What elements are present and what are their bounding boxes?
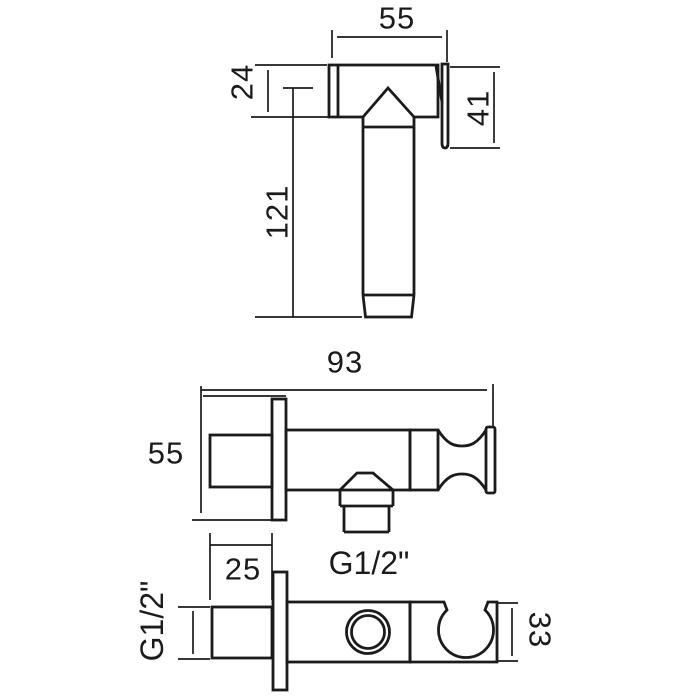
dim-label-overall-length: 93 (327, 347, 363, 378)
wall-plate-bottom (273, 572, 287, 690)
valve-body-bottom (287, 602, 410, 662)
wall-plate-side (272, 399, 286, 520)
outlet-nipple-side (344, 506, 389, 532)
dim-label-handle-length: 121 (262, 185, 293, 240)
hanging-hook (442, 64, 448, 148)
inlet-pipe-side (210, 435, 272, 487)
technical-drawing-page: 55 24 41 121 93 55 G1/2" 25 G1/2" 33 (0, 0, 700, 700)
handle-sides (363, 117, 414, 295)
inlet-pipe-bottom (212, 607, 272, 658)
dim-holder-depth (498, 603, 518, 661)
dim-overall-length (201, 384, 493, 513)
spray-cone (363, 88, 414, 117)
dim-label-head-width: 55 (379, 3, 415, 34)
holder-cradle-outline (410, 602, 497, 662)
dim-label-head-depth: 24 (227, 64, 258, 100)
outlet-port-outer-circle (347, 611, 390, 654)
dim-label-holder-depth: 33 (525, 612, 556, 648)
dim-head-depth (251, 65, 329, 117)
holder-spool-curves (438, 430, 486, 490)
handle-end-cap (363, 295, 414, 317)
dim-inlet-thread (178, 607, 210, 659)
dim-label-inlet-thread: G1/2" (136, 581, 168, 662)
hand-shower-view (251, 30, 500, 317)
dim-label-hook-height: 41 (463, 90, 494, 126)
bracket-side-view (192, 384, 495, 532)
holder-ring-side (410, 430, 438, 490)
dim-label-plate-size: 55 (148, 438, 184, 469)
outlet-port-inner-circle (352, 616, 385, 649)
dim-label-inlet-length: 25 (225, 554, 261, 585)
shower-head-outline (329, 65, 438, 117)
dim-label-outlet-thread: G1/2" (329, 547, 410, 579)
holder-disc-side (486, 427, 495, 493)
